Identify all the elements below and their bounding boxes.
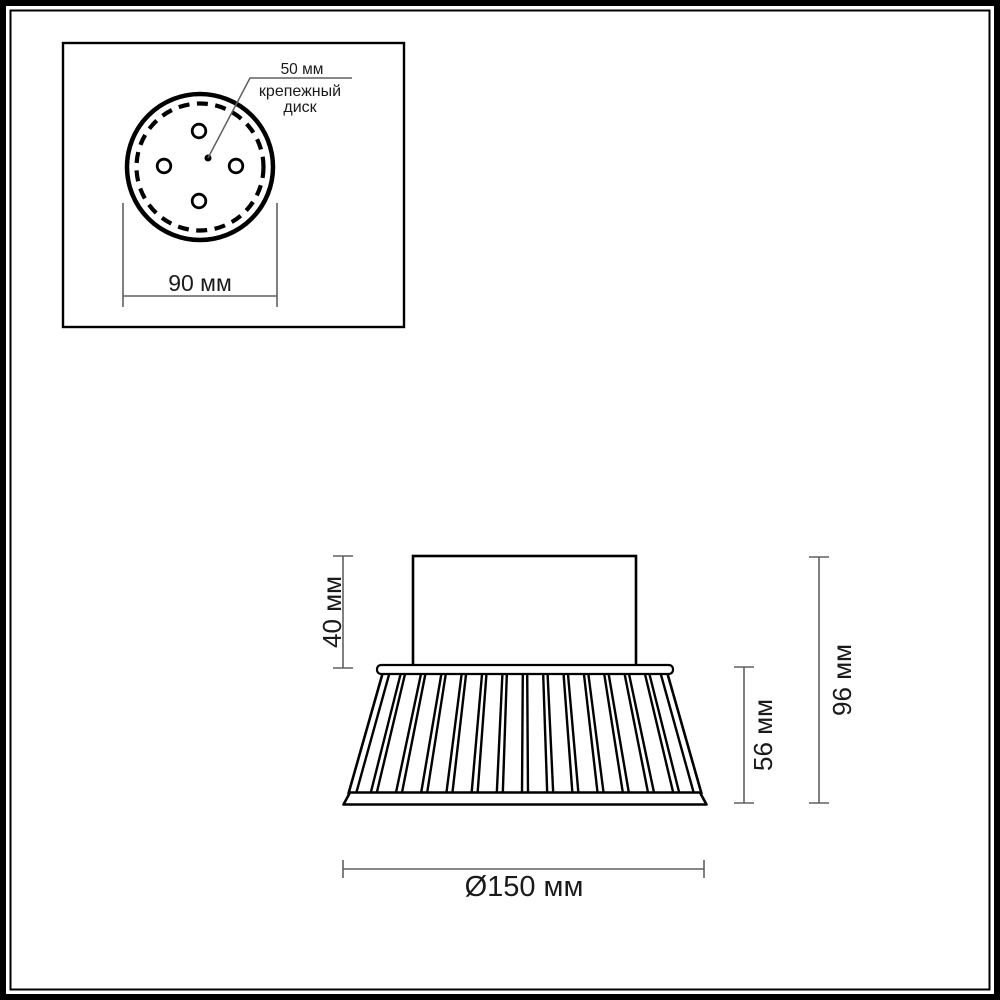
shade-bottom-rim	[344, 793, 707, 805]
mount-height-dimension: 40 мм	[317, 556, 353, 668]
canopy-width-label: 90 мм	[168, 270, 232, 296]
shade-height-label: 56 мм	[748, 699, 778, 771]
mount-height-label: 40 мм	[317, 576, 347, 648]
leader-caption-line1: крепежный	[259, 83, 341, 100]
total-height-label: 96 мм	[827, 644, 857, 716]
base-diameter-dimension: Ø150 мм	[343, 860, 704, 903]
base-diameter-label: Ø150 мм	[465, 871, 584, 903]
shade-top-rim	[377, 665, 673, 674]
disk-diameter-label: 50 мм	[281, 61, 324, 78]
technical-drawing-page: 50 мм крепежный диск 90 мм	[0, 0, 1000, 1000]
pleat-line	[527, 672, 528, 793]
total-height-dimension: 96 мм	[809, 557, 857, 803]
pleat-line	[522, 672, 523, 793]
drawing-canvas: 50 мм крепежный диск 90 мм	[0, 0, 1000, 1000]
leader-caption-line2: диск	[283, 99, 317, 116]
top-view-inset: 50 мм крепежный диск 90 мм	[63, 43, 404, 327]
mount-box	[413, 556, 636, 668]
shade-height-dimension: 56 мм	[734, 667, 778, 803]
side-view: 40 мм 56 мм 96 мм Ø150 мм	[317, 556, 857, 903]
inset-box	[63, 43, 404, 327]
